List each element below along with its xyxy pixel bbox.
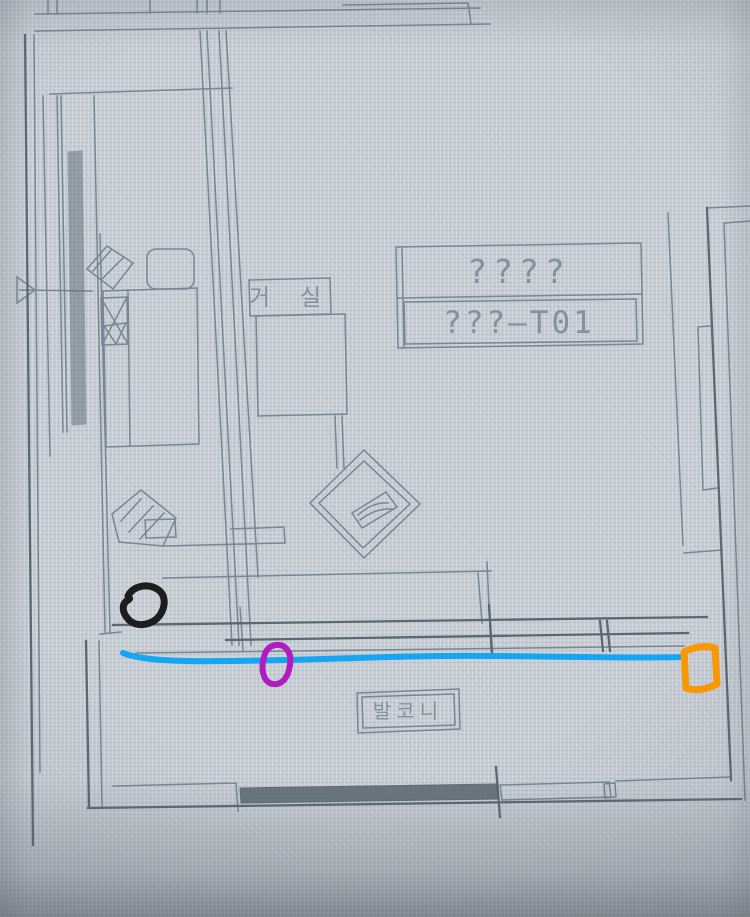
floor-plan-photo: 거 실 ???? ???—T01 발코니	[0, 0, 750, 917]
hand-annotations	[0, 0, 750, 917]
black-ink-loop	[123, 586, 164, 625]
purple-ink-oval	[262, 645, 290, 684]
blue-highlight-line	[123, 653, 685, 661]
orange-ink-box	[684, 647, 717, 690]
